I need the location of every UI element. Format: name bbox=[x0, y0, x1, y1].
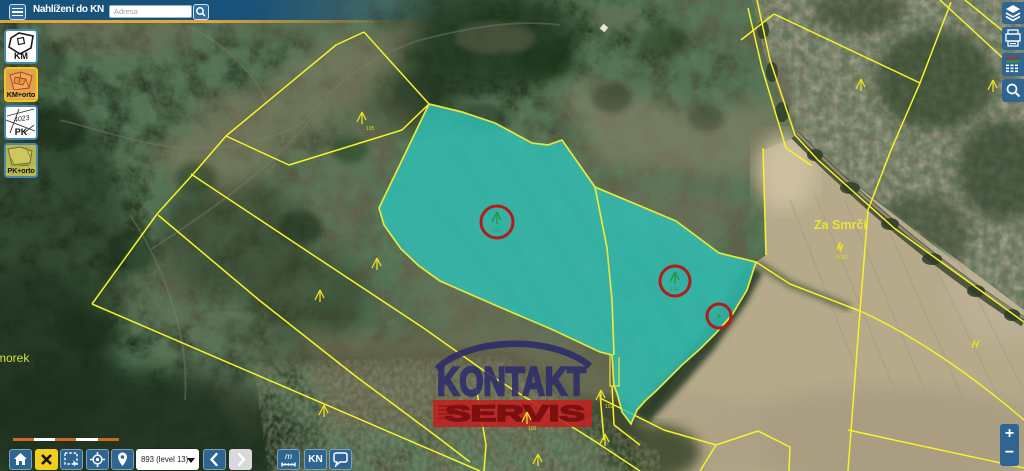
svg-text:103: 103 bbox=[528, 426, 537, 432]
svg-text:4023: 4023 bbox=[14, 115, 31, 124]
svg-text:4033: 4033 bbox=[836, 255, 847, 261]
svg-text:102: 102 bbox=[605, 404, 614, 410]
svg-text:103: 103 bbox=[492, 228, 501, 234]
svg-text:104: 104 bbox=[670, 287, 679, 293]
svg-text:morek: morek bbox=[0, 351, 30, 365]
svg-text:KONTAKT: KONTAKT bbox=[437, 360, 586, 404]
svg-text:m: m bbox=[285, 451, 292, 461]
svg-text:SERVIS: SERVIS bbox=[445, 401, 585, 426]
svg-text:105: 105 bbox=[366, 126, 375, 132]
svg-text:Za Smrčí: Za Smrčí bbox=[814, 218, 867, 232]
